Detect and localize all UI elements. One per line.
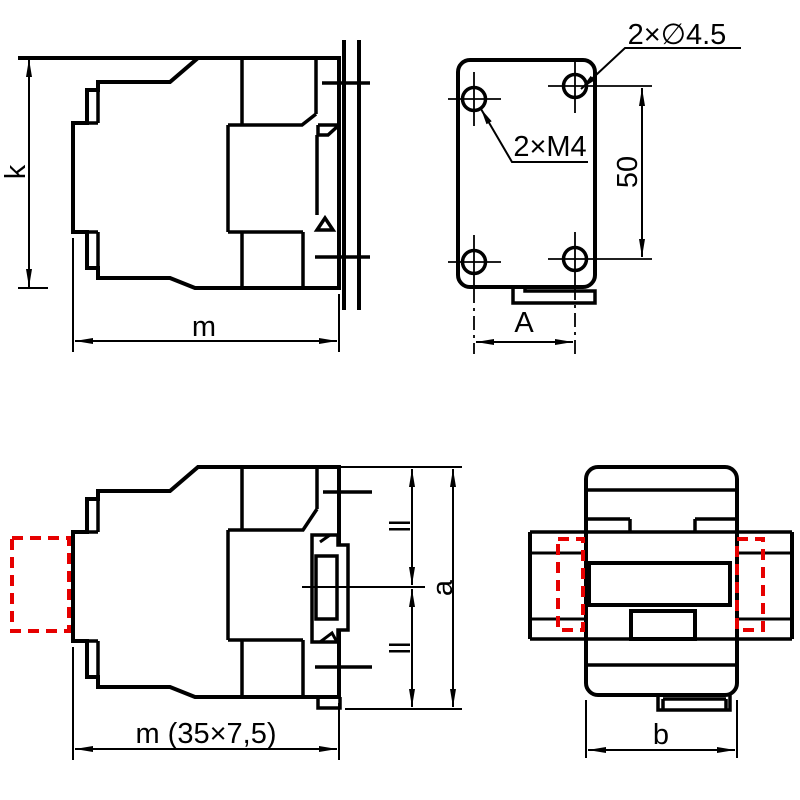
rail-hook-upper: [318, 125, 339, 135]
dim-label-m: m: [192, 311, 216, 343]
accessory-zone-left: [12, 538, 69, 631]
mounting-plate-view: 2×M4 2×∅4.5 50 A: [448, 19, 741, 354]
din-rail: [344, 40, 359, 310]
rail-clip-lower: [317, 218, 333, 230]
dim-label-b: b: [653, 719, 669, 751]
wing-outer-edges: [530, 532, 792, 639]
dim-label-ll-lower: ll: [385, 642, 417, 655]
dim-label-ll-upper: ll: [385, 520, 417, 533]
bottom-tab: [658, 695, 730, 710]
internal-lines: [228, 58, 317, 288]
callout-m4: 2×M4: [513, 131, 586, 163]
contactor-dimension-drawing: k m 2×M4 2×∅4.5 50 A: [0, 0, 800, 800]
dim-label-m35: m (35×7,5): [135, 718, 276, 750]
label-window: [589, 563, 730, 605]
body-outline: [586, 467, 737, 695]
internal-lines: [228, 467, 317, 697]
plate-bottom-tab: [513, 287, 595, 303]
top-view: b: [530, 467, 792, 758]
body-outline: [73, 467, 339, 697]
dim-label-a-height: a: [427, 579, 459, 596]
dim-label-a-width: A: [514, 307, 534, 339]
wing-band-lines: [530, 532, 792, 639]
leader-m4-arrowhead: [481, 109, 492, 124]
dim-label-50: 50: [612, 156, 644, 188]
callout-dia45: 2×∅4.5: [628, 19, 727, 51]
actuator-window: [631, 611, 695, 639]
body-outline: [73, 58, 339, 288]
side-view-on-rail: k m: [0, 40, 370, 352]
dim-label-k: k: [0, 164, 32, 179]
leader-dia45: [581, 48, 741, 89]
side-view-released: ll ll a m (35×7,5): [12, 467, 462, 760]
technical-drawing-page: k m 2×M4 2×∅4.5 50 A: [0, 0, 800, 800]
